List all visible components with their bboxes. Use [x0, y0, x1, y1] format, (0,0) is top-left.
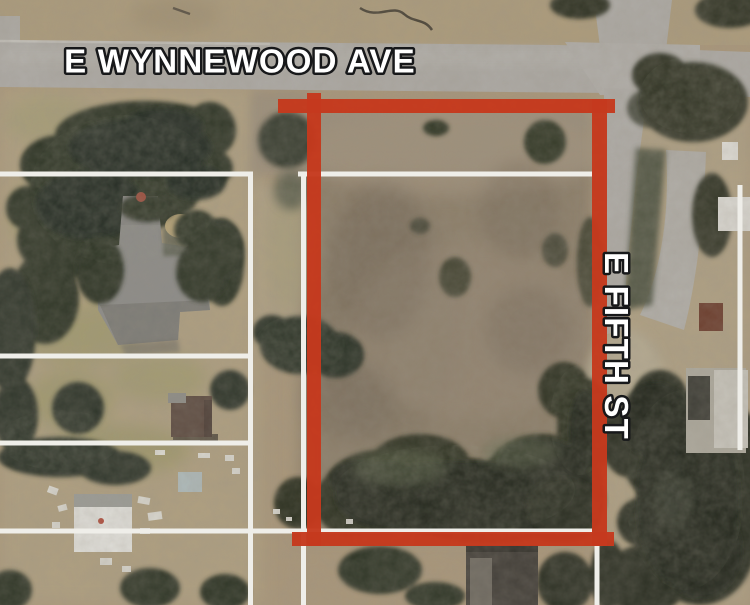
svg-text:E WYNNEWOOD AVE: E WYNNEWOOD AVE: [64, 43, 416, 80]
svg-text:E FIFTH ST: E FIFTH ST: [598, 252, 635, 440]
